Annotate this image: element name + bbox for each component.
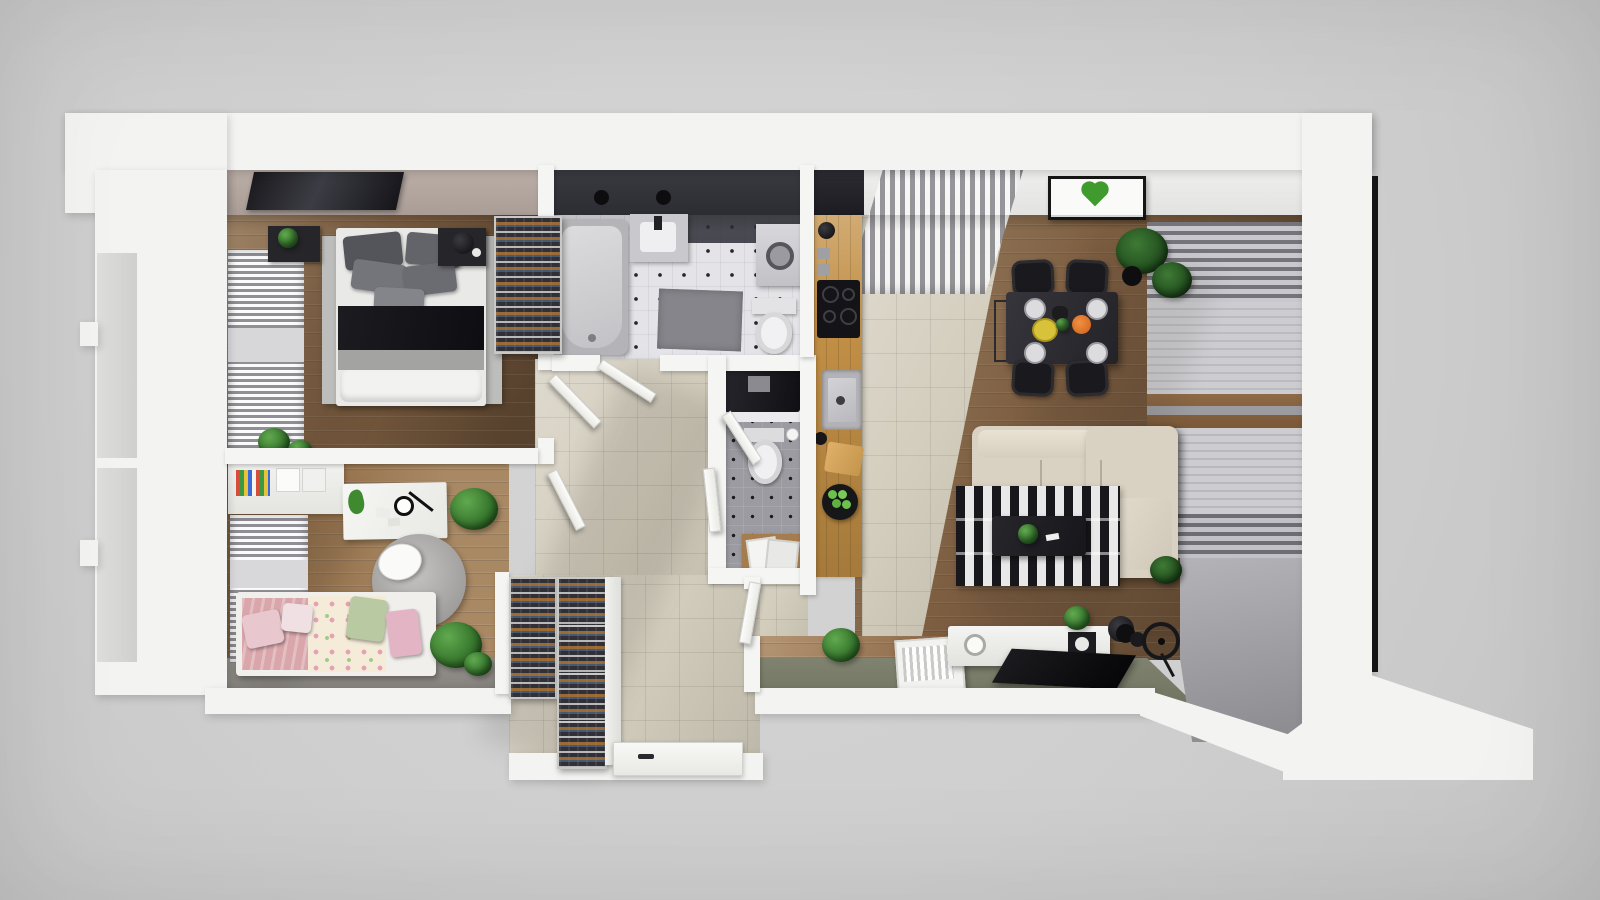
shelf-box xyxy=(302,468,326,492)
kids-pillow-pink xyxy=(385,608,422,658)
nightstand-plant xyxy=(278,228,298,248)
burner-2 xyxy=(842,288,855,301)
desk-paper xyxy=(375,507,390,519)
bed-white-foot xyxy=(340,370,482,402)
yellow-plate xyxy=(1032,318,1058,342)
bath-mat xyxy=(657,289,743,352)
green-apple xyxy=(828,490,837,499)
kids-plant-bed-small xyxy=(464,652,492,676)
desk-paper xyxy=(388,517,401,526)
bathtub-drain xyxy=(588,334,596,342)
bathtub-basin xyxy=(562,226,622,348)
table-lamp xyxy=(452,232,474,254)
window-sill-bar xyxy=(1147,406,1302,415)
wc-paper-roll xyxy=(786,428,799,441)
coffee-table-plant xyxy=(1018,524,1038,544)
bedroom-window-gap xyxy=(228,328,304,362)
outer-wall-bottom-left xyxy=(205,688,511,714)
wall-wc-south xyxy=(708,568,812,584)
wall-bathroom-south-right xyxy=(660,355,812,371)
front-door-handle xyxy=(638,754,654,759)
shower-head-right xyxy=(656,190,671,205)
wall-socket-1 xyxy=(817,248,830,259)
moss-heart-icon xyxy=(1084,184,1107,207)
window-glass-edge xyxy=(1372,176,1378,672)
sheer-curtain-upper xyxy=(1147,302,1302,394)
burner-3 xyxy=(823,310,836,323)
front-door xyxy=(613,742,743,776)
shelf-books-colorful xyxy=(236,470,270,496)
table-centerpiece-greens xyxy=(1056,318,1069,331)
flat-tv xyxy=(992,649,1136,690)
coffee-table xyxy=(992,516,1086,556)
shoe-rack-2b xyxy=(557,625,607,675)
place-setting-plate xyxy=(1024,342,1046,364)
burner-1 xyxy=(822,286,839,303)
entry-cabinet-panel xyxy=(605,577,621,765)
bath-toilet-bowl xyxy=(756,312,792,354)
shower-head-left xyxy=(594,190,609,205)
washer-drum xyxy=(766,242,794,270)
shoe-rack-1a xyxy=(509,577,557,639)
shelf-box xyxy=(276,468,300,492)
kitchen-fridge xyxy=(810,168,864,215)
book-spines xyxy=(902,644,954,681)
shoe-rack-2a xyxy=(557,577,607,627)
bathroom-north-wall-dark xyxy=(538,168,812,215)
bath-sink-tap xyxy=(654,216,662,230)
vinyl-disc xyxy=(1075,637,1089,651)
left-window-opening-kids xyxy=(97,468,137,662)
wall-bath-kitchen xyxy=(800,165,814,357)
place-setting-plate xyxy=(1086,298,1108,320)
dining-chair xyxy=(1011,359,1055,397)
wall-kids-entry xyxy=(495,572,509,694)
moss-heart-art-frame xyxy=(1048,176,1146,220)
kids-pillow-white xyxy=(281,603,314,634)
wall-socket-2 xyxy=(817,264,830,275)
green-apple xyxy=(842,500,851,509)
shoe-rack-2c xyxy=(557,673,607,723)
shoe-rack-2d xyxy=(557,721,607,769)
window-plant xyxy=(1150,556,1182,584)
desk-lamp-shade xyxy=(394,496,414,516)
kids-plant-desk xyxy=(450,488,498,530)
cutting-board xyxy=(824,441,864,476)
wall-bedroom-kids-divider xyxy=(225,448,538,464)
floorplan-scene xyxy=(0,0,1600,900)
exercise-wheel-hub xyxy=(1158,638,1165,645)
outer-wall-bottom-mid xyxy=(755,688,1155,714)
place-setting-plate xyxy=(1086,342,1108,364)
wall-bathroom-south-left xyxy=(552,355,600,371)
place-setting-plate xyxy=(1024,298,1046,320)
kids-pillow-green xyxy=(345,596,388,643)
bed-black-throw xyxy=(338,306,484,350)
left-window-opening-bedroom xyxy=(97,253,137,458)
balcony-plant-left xyxy=(822,628,860,662)
left-window-sill-1 xyxy=(80,322,98,346)
wc-vanity-sink xyxy=(748,376,770,392)
dining-corner-plant-2 xyxy=(1152,262,1192,298)
plant-pot-black xyxy=(1122,266,1142,286)
left-window-sill-2 xyxy=(80,540,98,566)
outer-wall-right xyxy=(1302,113,1372,768)
burner-4 xyxy=(840,308,857,325)
shoe-rack-1b xyxy=(509,637,557,699)
wall-wc-kitchen xyxy=(800,355,816,595)
bedroom-wine-rack xyxy=(494,216,562,354)
outer-wall-top xyxy=(65,113,1372,170)
orange-dish xyxy=(1072,315,1091,334)
kitchen-faucet xyxy=(836,396,845,405)
green-apple xyxy=(838,490,847,499)
bedroom-wall-tv xyxy=(246,172,404,210)
dining-chair xyxy=(1065,359,1109,397)
decor-ball xyxy=(472,248,481,257)
kids-window-gap xyxy=(230,560,308,588)
bed-gray-blanket xyxy=(338,350,484,370)
wall-hall-living xyxy=(744,636,760,692)
green-apple xyxy=(832,499,841,508)
kettle xyxy=(818,222,835,239)
balcony-plant-mid xyxy=(1064,606,1090,630)
speaker xyxy=(964,634,986,656)
wall-bedroom-stub xyxy=(538,438,554,464)
